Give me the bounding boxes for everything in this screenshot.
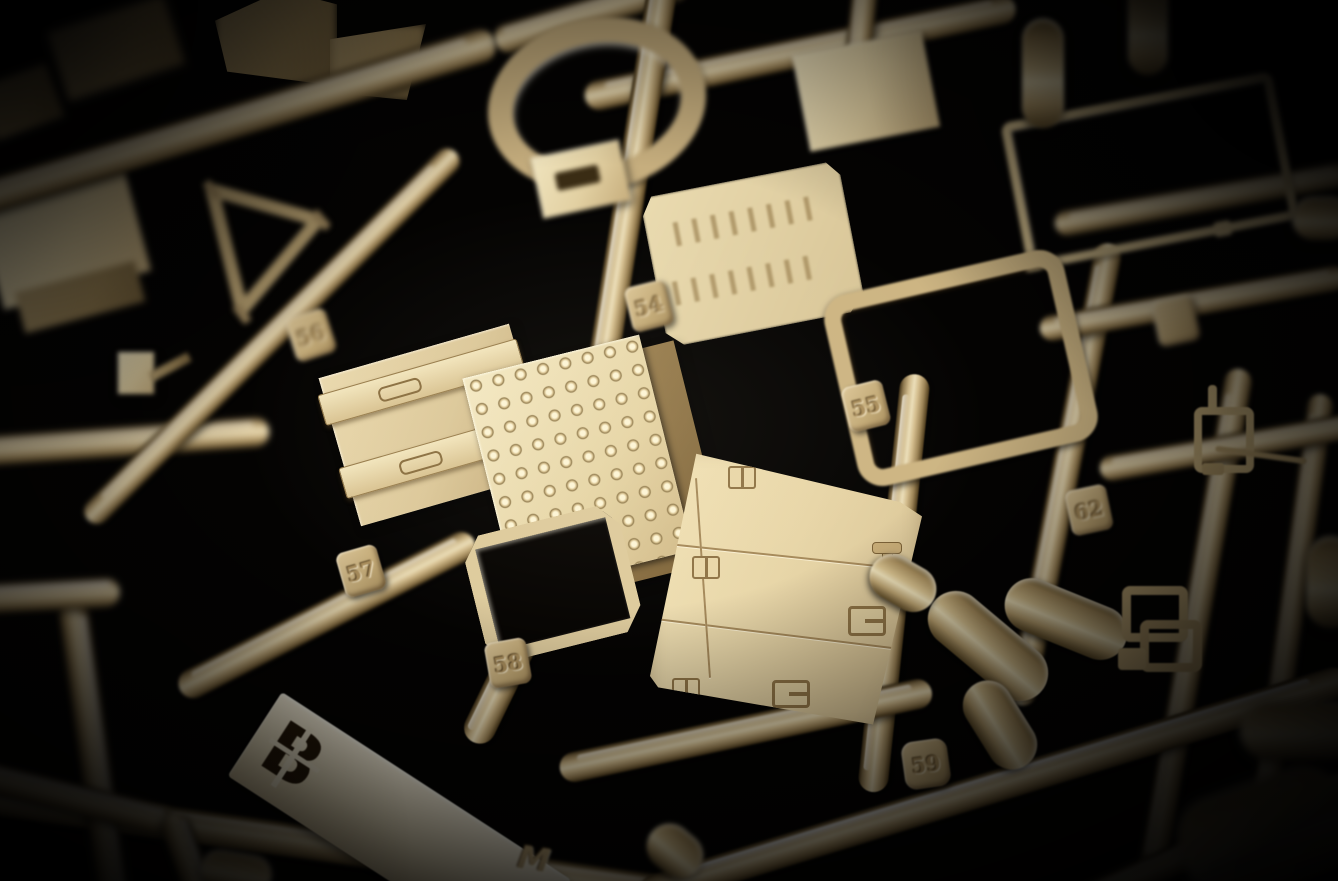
door-latch <box>772 680 810 708</box>
sprue-gate <box>1240 700 1338 760</box>
sprue-runner <box>0 577 121 615</box>
grille-ribs <box>672 254 819 305</box>
sprue-gate <box>1022 18 1064 128</box>
frame-lug <box>1213 220 1233 238</box>
sprue-gate <box>1166 754 1338 881</box>
part-number: 59 <box>910 750 942 779</box>
part-number: 62 <box>1072 495 1106 526</box>
door-latch <box>848 606 886 636</box>
part-number: 54 <box>632 290 666 321</box>
part-number-tag: 62 <box>1064 483 1115 537</box>
part-number: 58 <box>491 648 524 678</box>
sprue-gate <box>1292 196 1338 240</box>
maker-emboss: M <box>515 838 552 881</box>
sprue-gate <box>1306 536 1338 628</box>
part-hook-bracket <box>1188 385 1246 477</box>
door-hinge <box>728 466 756 489</box>
part-blurred-top-left <box>215 0 337 86</box>
part-small-arm <box>148 352 192 381</box>
part-number-tag: 59 <box>900 737 952 791</box>
part-number: 57 <box>343 555 378 587</box>
strap-handle-slot <box>377 377 423 404</box>
grille-ribs <box>673 195 820 246</box>
studded-box-opening <box>459 501 646 666</box>
sprue-runner <box>57 598 130 881</box>
part-hook-bracket <box>1118 582 1196 674</box>
part-number: 55 <box>849 390 883 421</box>
door-hinge <box>672 678 700 701</box>
part-number: 56 <box>293 319 329 352</box>
sprue-photo: 56 54 55 57 58 59 62 B M <box>0 0 1338 881</box>
bracket-slot <box>554 164 601 191</box>
part-blurred-top-left <box>47 0 185 101</box>
part-blurred-top-left <box>0 63 64 140</box>
sprue-runner <box>173 527 481 704</box>
door-hinge <box>692 556 720 579</box>
door-t-handle <box>872 542 902 554</box>
part-number-tag: 58 <box>483 637 532 690</box>
sprue-gate <box>1128 0 1168 75</box>
